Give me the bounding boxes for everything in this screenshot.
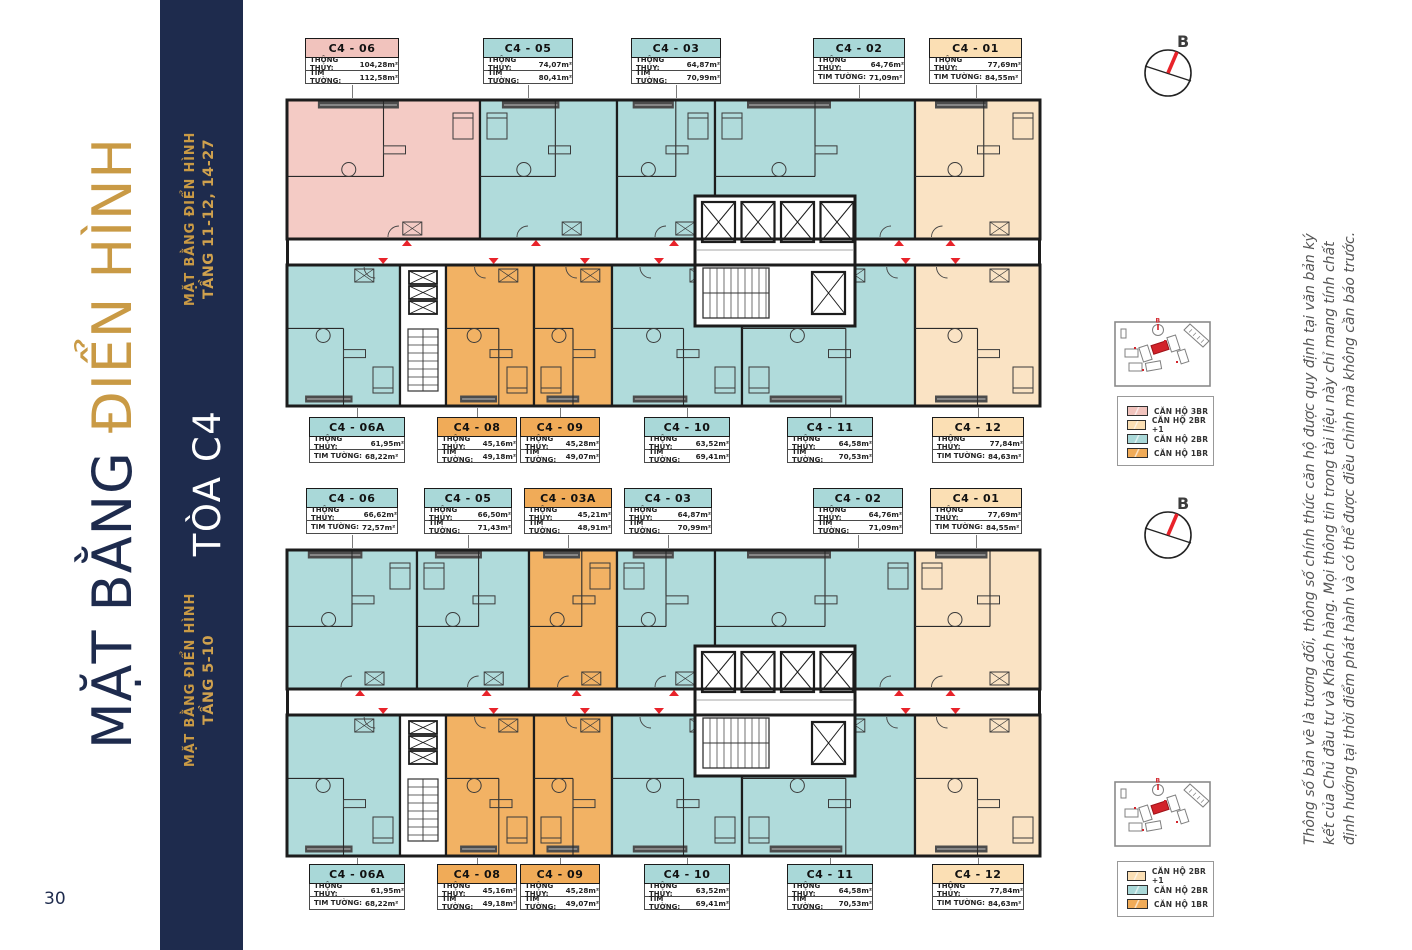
area-value: 64,76m² — [871, 60, 904, 69]
unit-label-area-row: TIM TƯỜNG:48,91m² — [524, 521, 612, 534]
unit-label-C4-05: C4 - 05THÔNG THỦY:66,50m²TIM TƯỜNG:71,43… — [424, 488, 512, 534]
legend-item: CĂN HỘ 2BR — [1127, 883, 1213, 897]
area-value: 70,99m² — [687, 73, 720, 82]
unit-label-header: C4 - 11 — [787, 864, 873, 884]
unit-C4-08 — [446, 265, 534, 406]
label-connector — [859, 85, 860, 98]
page-title: MẶT BẰNG ĐIỂN HÌNH — [70, 143, 154, 743]
page-title-part2: ĐIỂN HÌNH — [81, 137, 144, 433]
area-field-label: TIM TƯỜNG: — [429, 519, 475, 535]
compass-icon: B — [1128, 25, 1208, 105]
area-field-label: TIM TƯỜNG: — [636, 69, 684, 85]
unit-label-area-row: TIM TƯỜNG:69,41m² — [644, 450, 730, 463]
legend-label: CĂN HỘ 2BR +1 — [1152, 867, 1213, 885]
unit-C4-06A — [287, 265, 400, 406]
unit-label-area-row: THÔNG THỦY:77,84m² — [932, 437, 1024, 450]
unit-C4-06A — [287, 715, 400, 856]
unit-label-C4-08: C4 - 08THÔNG THỦY:45,16m²TIM TƯỜNG:49,18… — [437, 417, 517, 463]
area-value: 112,58m² — [360, 73, 398, 82]
area-field-label: THÔNG THỦY: — [818, 56, 868, 72]
label-connector — [560, 408, 561, 417]
floor-plan-floors-11-12-14-27 — [285, 98, 1042, 408]
tower-name-block: TÒA C4 — [183, 393, 231, 573]
area-field-label: TIM TƯỜNG: — [311, 523, 359, 531]
band-top-subtitle: TẦNG 11-12, 14-27 — [201, 139, 217, 299]
legend-item: CĂN HỘ 2BR +1 — [1127, 869, 1213, 883]
area-field-label: TIM TƯỜNG: — [937, 452, 985, 460]
area-value: 45,28m² — [566, 439, 599, 448]
unit-C4-05 — [480, 100, 617, 239]
area-value: 45,16m² — [483, 886, 516, 895]
area-value: 104,28m² — [360, 60, 398, 69]
tower-name: TÒA C4 — [186, 410, 229, 557]
area-value: 66,50m² — [478, 510, 511, 519]
label-connector — [858, 535, 859, 548]
legend-swatch — [1127, 448, 1148, 458]
area-field-label: TIM TƯỜNG: — [442, 895, 480, 911]
area-field-label: THÔNG THỦY: — [311, 506, 361, 522]
area-field-label: THÔNG THỦY: — [937, 435, 987, 451]
unit-label-header: C4 - 01 — [930, 488, 1022, 508]
area-value: 63,52m² — [696, 439, 729, 448]
unit-label-C4-09: C4 - 09THÔNG THỦY:45,28m²TIM TƯỜNG:49,07… — [520, 864, 600, 910]
area-value: 80,41m² — [539, 73, 572, 82]
unit-label-area-row: TIM TƯỜNG:70,53m² — [787, 897, 873, 910]
svg-text:B: B — [1156, 778, 1161, 785]
unit-label-area-row: THÔNG THỦY:61,95m² — [309, 437, 405, 450]
area-value: 48,91m² — [578, 523, 611, 532]
unit-label-header: C4 - 12 — [932, 864, 1024, 884]
unit-label-header: C4 - 08 — [437, 417, 517, 437]
unit-label-C4-05: C4 - 05THÔNG THỦY:74,07m²TIM TƯỜNG:80,41… — [483, 38, 573, 84]
legend-item: CĂN HỘ 1BR — [1127, 446, 1213, 460]
brochure-page: MẶT BẰNG ĐIỂN HÌNH 30 MẶT BẰNG ĐIỂN HÌNH… — [0, 0, 1412, 950]
unit-label-C4-08: C4 - 08THÔNG THỦY:45,16m²TIM TƯỜNG:49,18… — [437, 864, 517, 910]
unit-label-C4-03A: C4 - 03ATHÔNG THỦY:45,21m²TIM TƯỜNG:48,9… — [524, 488, 612, 534]
label-connector — [687, 408, 688, 417]
area-field-label: TIM TƯỜNG: — [529, 519, 575, 535]
unit-label-area-row: TIM TƯỜNG:71,43m² — [424, 521, 512, 534]
unit-label-C4-11: C4 - 11THÔNG THỦY:64,58m²TIM TƯỜNG:70,53… — [787, 417, 873, 463]
unit-label-header: C4 - 11 — [787, 417, 873, 437]
area-field-label: THÔNG THỦY: — [937, 882, 987, 898]
disclaimer-line: định hướng tại thời điểm phát hành và có… — [1340, 232, 1360, 845]
unit-C4-01 — [915, 550, 1040, 689]
unit-label-area-row: TIM TƯỜNG:84,63m² — [932, 450, 1024, 463]
label-connector — [357, 408, 358, 417]
area-value: 69,41m² — [696, 899, 729, 908]
page-title-part1: MẶT BẰNG — [81, 433, 144, 749]
unit-label-C4-12: C4 - 12THÔNG THỦY:77,84m²TIM TƯỜNG:84,63… — [932, 417, 1024, 463]
unit-label-area-row: TIM TƯỜNG:69,41m² — [644, 897, 730, 910]
unit-label-area-row: THÔNG THỦY:61,95m² — [309, 884, 405, 897]
label-connector — [477, 408, 478, 417]
legend-item: CĂN HỘ 2BR +1 — [1127, 418, 1213, 432]
unit-C4-03A — [529, 550, 617, 689]
band-top-title: MẶT BẰNG ĐIỂN HÌNH — [183, 132, 198, 306]
area-field-label: TIM TƯỜNG: — [935, 523, 983, 531]
unit-C4-06 — [287, 100, 480, 239]
legend: CĂN HỘ 3BRCĂN HỘ 2BR +1CĂN HỘ 2BRCĂN HỘ … — [1117, 396, 1214, 466]
area-value: 70,53m² — [839, 452, 872, 461]
svg-text:B: B — [1177, 494, 1189, 513]
area-value: 70,99m² — [678, 523, 711, 532]
area-value: 64,58m² — [839, 886, 872, 895]
disclaimer-line: kết của Chủ đầu tư và Khách hàng. Mọi th… — [1320, 241, 1340, 845]
area-field-label: TIM TƯỜNG: — [818, 73, 866, 81]
area-field-label: TIM TƯỜNG: — [934, 73, 982, 81]
area-field-label: TIM TƯỜNG: — [937, 899, 985, 907]
area-value: 63,52m² — [696, 886, 729, 895]
area-field-label: THÔNG THỦY: — [314, 435, 368, 451]
unit-label-header: C4 - 03A — [524, 488, 612, 508]
unit-label-C4-06: C4 - 06THÔNG THỦY:66,62m²TIM TƯỜNG:72,57… — [306, 488, 398, 534]
unit-label-area-row: THÔNG THỦY:66,62m² — [306, 508, 398, 521]
legend-label: CĂN HỘ 2BR — [1154, 435, 1208, 444]
legend-label: CĂN HỘ 1BR — [1154, 900, 1208, 909]
unit-label-header: C4 - 01 — [929, 38, 1022, 58]
unit-label-area-row: TIM TƯỜNG:49,07m² — [520, 897, 600, 910]
unit-label-header: C4 - 10 — [644, 417, 730, 437]
unit-label-header: C4 - 10 — [644, 864, 730, 884]
area-value: 84,63m² — [988, 452, 1021, 461]
area-field-label: TIM TƯỜNG: — [649, 448, 693, 464]
unit-label-C4-03: C4 - 03THÔNG THỦY:64,87m²TIM TƯỜNG:70,99… — [624, 488, 712, 534]
unit-label-area-row: TIM TƯỜNG:71,09m² — [813, 521, 903, 534]
area-field-label: TIM TƯỜNG: — [629, 519, 675, 535]
site-map-thumbnail: B — [1112, 776, 1214, 852]
area-value: 64,87m² — [678, 510, 711, 519]
area-value: 70,53m² — [839, 899, 872, 908]
area-value: 77,84m² — [990, 439, 1023, 448]
area-field-label: TIM TƯỜNG: — [818, 519, 866, 535]
unit-label-header: C4 - 05 — [483, 38, 573, 58]
unit-label-C4-10: C4 - 10THÔNG THỦY:63,52m²TIM TƯỜNG:69,41… — [644, 864, 730, 910]
disclaimer-line: Thông số bản vẽ là tương đối, thông số c… — [1300, 233, 1320, 845]
unit-label-header: C4 - 03 — [624, 488, 712, 508]
area-value: 66,62m² — [364, 510, 397, 519]
floor-plan-floors-5-10 — [285, 548, 1042, 858]
legend-item: CĂN HỘ 2BR — [1127, 432, 1213, 446]
area-value: 49,07m² — [566, 452, 599, 461]
unit-label-area-row: TIM TƯỜNG:70,99m² — [624, 521, 712, 534]
unit-label-area-row: TIM TƯỜNG:70,53m² — [787, 450, 873, 463]
unit-label-C4-10: C4 - 10THÔNG THỦY:63,52m²TIM TƯỜNG:69,41… — [644, 417, 730, 463]
page-number: 30 — [44, 889, 66, 909]
unit-C4-08 — [446, 715, 534, 856]
label-connector — [976, 85, 977, 98]
unit-label-header: C4 - 06A — [309, 417, 405, 437]
unit-label-C4-06: C4 - 06THÔNG THỦY:104,28m²TIM TƯỜNG:112,… — [305, 38, 399, 84]
unit-label-area-row: THÔNG THỦY:77,69m² — [930, 508, 1022, 521]
legend-swatch — [1127, 434, 1148, 444]
unit-label-C4-02: C4 - 02THÔNG THỦY:64,76m²TIM TƯỜNG:71,09… — [813, 38, 905, 84]
label-connector — [668, 535, 669, 548]
svg-text:B: B — [1156, 318, 1161, 325]
legend-swatch — [1127, 885, 1148, 895]
area-value: 84,63m² — [988, 899, 1021, 908]
unit-label-header: C4 - 08 — [437, 864, 517, 884]
unit-label-area-row: TIM TƯỜNG:84,55m² — [929, 71, 1022, 84]
area-field-label: TIM TƯỜNG: — [314, 452, 362, 460]
area-value: 71,09m² — [869, 73, 902, 82]
unit-label-C4-03: C4 - 03THÔNG THỦY:64,87m²TIM TƯỜNG:70,99… — [631, 38, 721, 84]
unit-C4-01 — [915, 100, 1040, 239]
legend: CĂN HỘ 2BR +1CĂN HỘ 2BRCĂN HỘ 1BR — [1117, 861, 1214, 917]
legend-swatch — [1127, 406, 1148, 416]
area-field-label: THÔNG THỦY: — [314, 882, 368, 898]
unit-label-area-row: TIM TƯỜNG:68,22m² — [309, 897, 405, 910]
area-field-label: TIM TƯỜNG: — [525, 895, 563, 911]
unit-label-area-row: TIM TƯỜNG:49,18m² — [437, 897, 517, 910]
area-value: 49,18m² — [483, 452, 516, 461]
label-connector — [468, 535, 469, 548]
unit-label-C4-12: C4 - 12THÔNG THỦY:77,84m²TIM TƯỜNG:84,63… — [932, 864, 1024, 910]
legend-label: CĂN HỘ 3BR — [1154, 407, 1208, 416]
unit-label-header: C4 - 02 — [813, 488, 903, 508]
unit-label-header: C4 - 06A — [309, 864, 405, 884]
unit-label-C4-11: C4 - 11THÔNG THỦY:64,58m²TIM TƯỜNG:70,53… — [787, 864, 873, 910]
unit-label-header: C4 - 05 — [424, 488, 512, 508]
unit-label-header: C4 - 03 — [631, 38, 721, 58]
unit-label-area-row: TIM TƯỜNG:49,18m² — [437, 450, 517, 463]
area-field-label: TIM TƯỜNG: — [314, 899, 362, 907]
unit-label-area-row: TIM TƯỜNG:80,41m² — [483, 71, 573, 84]
label-connector — [978, 408, 979, 417]
unit-label-area-row: THÔNG THỦY:77,84m² — [932, 884, 1024, 897]
area-field-label: TIM TƯỜNG: — [792, 895, 836, 911]
svg-text:B: B — [1177, 32, 1189, 51]
legend-swatch — [1127, 871, 1146, 881]
area-value: 45,28m² — [566, 886, 599, 895]
area-value: 69,41m² — [696, 452, 729, 461]
unit-label-area-row: TIM TƯỜNG:49,07m² — [520, 450, 600, 463]
unit-label-C4-01: C4 - 01THÔNG THỦY:77,69m²TIM TƯỜNG:84,55… — [929, 38, 1022, 84]
area-value: 71,43m² — [478, 523, 511, 532]
area-value: 84,55m² — [986, 523, 1019, 532]
area-field-label: TIM TƯỜNG: — [310, 69, 357, 85]
unit-C4-09 — [534, 265, 612, 406]
legend-swatch — [1127, 420, 1146, 430]
unit-label-C4-02: C4 - 02THÔNG THỦY:64,76m²TIM TƯỜNG:71,09… — [813, 488, 903, 534]
label-connector — [976, 535, 977, 548]
area-value: 74,07m² — [539, 60, 572, 69]
band-bottom-subtitle: TẦNG 5-10 — [201, 635, 217, 725]
band-bottom-group: MẶT BẰNG ĐIỂN HÌNH TẦNG 5-10 — [177, 560, 223, 800]
area-field-label: THÔNG THỦY: — [935, 506, 985, 522]
area-field-label: TIM TƯỜNG: — [442, 448, 480, 464]
unit-label-area-row: TIM TƯỜNG:71,09m² — [813, 71, 905, 84]
area-value: 45,16m² — [483, 439, 516, 448]
area-value: 68,22m² — [365, 899, 398, 908]
area-value: 49,18m² — [483, 899, 516, 908]
unit-label-area-row: TIM TƯỜNG:70,99m² — [631, 71, 721, 84]
unit-C4-05 — [417, 550, 529, 689]
area-value: 64,76m² — [869, 510, 902, 519]
unit-label-C4-09: C4 - 09THÔNG THỦY:45,28m²TIM TƯỜNG:49,07… — [520, 417, 600, 463]
unit-label-header: C4 - 06 — [306, 488, 398, 508]
label-connector — [528, 85, 529, 98]
unit-label-header: C4 - 09 — [520, 417, 600, 437]
legend-swatch — [1127, 899, 1148, 909]
unit-label-C4-01: C4 - 01THÔNG THỦY:77,69m²TIM TƯỜNG:84,55… — [930, 488, 1022, 534]
label-connector — [352, 535, 353, 548]
label-connector — [676, 85, 677, 98]
area-value: 64,58m² — [839, 439, 872, 448]
area-field-label: TIM TƯỜNG: — [792, 448, 836, 464]
legend-label: CĂN HỘ 1BR — [1154, 449, 1208, 458]
area-value: 61,95m² — [371, 439, 404, 448]
area-value: 72,57m² — [362, 523, 395, 532]
area-value: 77,69m² — [988, 510, 1021, 519]
unit-C4-12 — [915, 715, 1040, 856]
site-map-thumbnail: B — [1112, 316, 1214, 392]
legend-label: CĂN HỘ 2BR +1 — [1152, 416, 1213, 434]
unit-label-C4-06A: C4 - 06ATHÔNG THỦY:61,95m²TIM TƯỜNG:68,2… — [309, 864, 405, 910]
disclaimer-text: Thông số bản vẽ là tương đối, thông số c… — [1299, 145, 1361, 845]
area-value: 49,07m² — [566, 899, 599, 908]
unit-label-header: C4 - 02 — [813, 38, 905, 58]
unit-label-area-row: TIM TƯỜNG:84,55m² — [930, 521, 1022, 534]
label-connector — [352, 85, 353, 98]
unit-label-header: C4 - 06 — [305, 38, 399, 58]
area-value: 71,09m² — [869, 523, 902, 532]
unit-C4-06 — [287, 550, 417, 689]
area-field-label: TIM TƯỜNG: — [649, 895, 693, 911]
legend-item: CĂN HỘ 1BR — [1127, 897, 1213, 911]
area-value: 64,87m² — [687, 60, 720, 69]
unit-label-area-row: TIM TƯỜNG:68,22m² — [309, 450, 405, 463]
unit-label-area-row: THÔNG THỦY:64,76m² — [813, 58, 905, 71]
area-value: 68,22m² — [365, 452, 398, 461]
compass-icon: B — [1128, 487, 1208, 567]
unit-label-area-row: TIM TƯỜNG:84,63m² — [932, 897, 1024, 910]
band-top-group: MẶT BẰNG ĐIỂN HÌNH TẦNG 11-12, 14-27 — [177, 99, 223, 339]
area-value: 77,69m² — [988, 60, 1021, 69]
unit-label-header: C4 - 09 — [520, 864, 600, 884]
legend-label: CĂN HỘ 2BR — [1154, 886, 1208, 895]
unit-label-area-row: THÔNG THỦY:77,69m² — [929, 58, 1022, 71]
unit-C4-12 — [915, 265, 1040, 406]
area-value: 45,21m² — [578, 510, 611, 519]
unit-label-area-row: TIM TƯỜNG:112,58m² — [305, 71, 399, 84]
unit-label-header: C4 - 12 — [932, 417, 1024, 437]
area-field-label: THÔNG THỦY: — [934, 56, 985, 72]
unit-C4-09 — [534, 715, 612, 856]
area-field-label: TIM TƯỜNG: — [488, 69, 536, 85]
label-connector — [568, 535, 569, 548]
area-value: 77,84m² — [990, 886, 1023, 895]
unit-label-C4-06A: C4 - 06ATHÔNG THỦY:61,95m²TIM TƯỜNG:68,2… — [309, 417, 405, 463]
area-field-label: TIM TƯỜNG: — [525, 448, 563, 464]
area-value: 84,55m² — [985, 73, 1018, 82]
area-value: 61,95m² — [371, 886, 404, 895]
band-bottom-title: MẶT BẰNG ĐIỂN HÌNH — [183, 593, 198, 767]
label-connector — [830, 408, 831, 417]
unit-label-area-row: TIM TƯỜNG:72,57m² — [306, 521, 398, 534]
